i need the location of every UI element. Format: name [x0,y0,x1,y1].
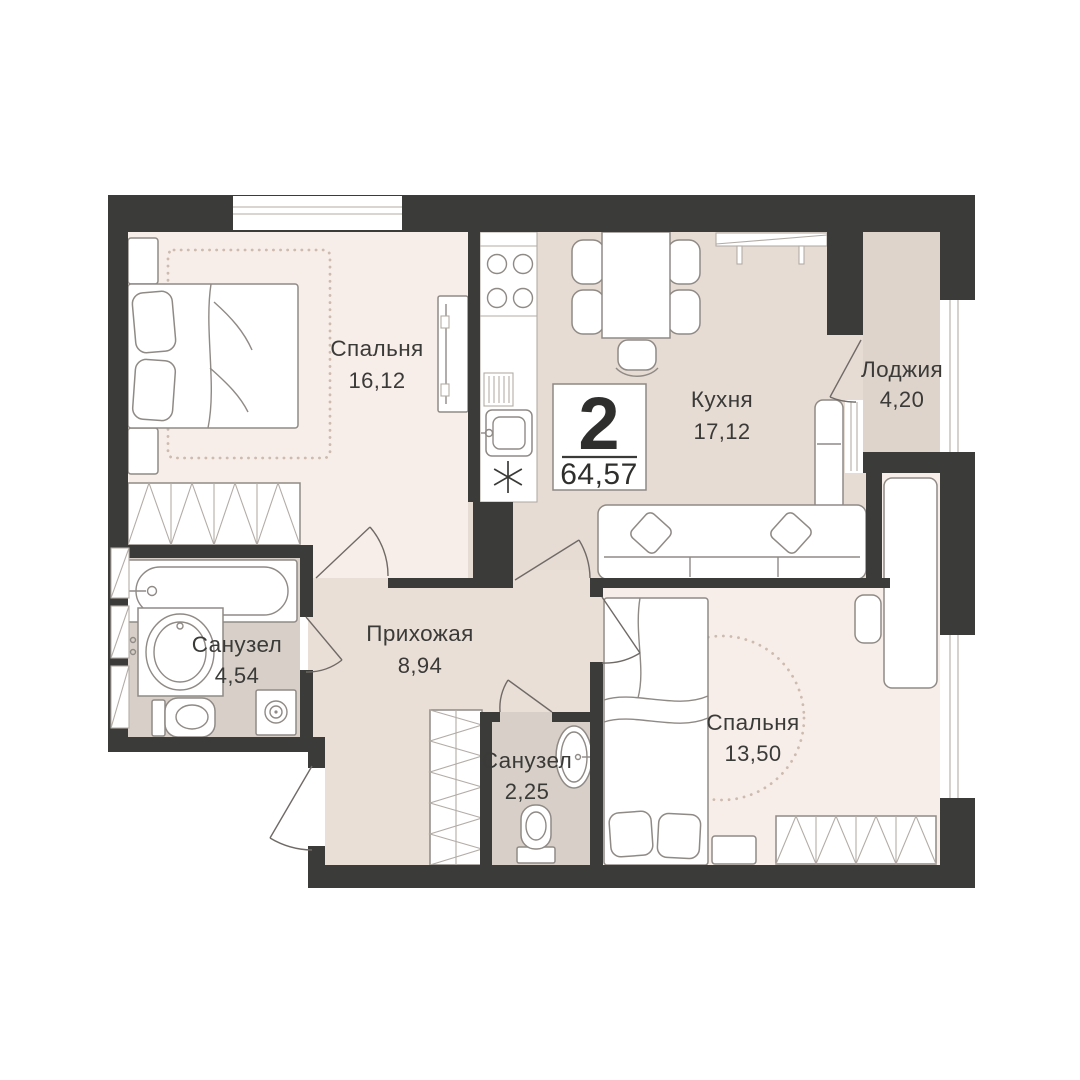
label-kitchen-name: Кухня [691,387,753,412]
wall-kitchen-loggia [827,232,863,335]
wall-kitchen-stub [473,502,513,588]
wall-right-middle [940,452,975,635]
label-kitchen-area: 17,12 [693,419,750,444]
floor-hallway-door-strip [503,570,603,588]
wall-right-top [940,232,975,300]
label-bathroom-2-area: 2,25 [505,779,549,804]
window-loggia-right [940,300,973,452]
chair-icon [572,290,604,334]
single-bed-icon [604,598,708,865]
badge-rooms-count: 2 [578,382,619,465]
dining-table-icon [602,232,670,338]
window-bedroom-2-right [940,635,973,798]
hallway-wardrobe-icon [430,710,482,865]
chair-icon [572,240,604,284]
label-loggia-name: Лоджия [861,357,943,382]
nightstand-icon [128,238,158,284]
wall-bottom [308,865,975,888]
wall-bath2-top-left [487,712,500,722]
wall-bath2-top-right [552,712,590,722]
entry-door-icon [270,766,312,850]
label-hallway-name: Прихожая [366,621,473,646]
window-bedroom-1 [233,196,402,230]
vent-shafts [111,548,129,728]
badge-total-area: 64,57 [560,458,638,491]
nightstand-icon [128,428,158,474]
wall-kitchen-hall [590,578,890,588]
label-bedroom-1-area: 16,12 [348,368,405,393]
wall-bedroom2-left-top [590,578,603,597]
entry-door-gap [308,768,325,846]
chair-icon [668,290,700,334]
wall-kitchen-bedroom2 [866,473,882,588]
tv-stand-icon [438,296,468,412]
chair-icon [668,240,700,284]
apartment-badge: 2 64,57 [553,382,646,491]
wall-bedroom1-hall [388,578,473,588]
kitchen-sink-icon [481,410,532,456]
wall-under-loggia [863,452,940,473]
wall-bath1-right-bottom [300,670,313,752]
wall-bedroom1-kitchen [468,232,480,502]
toilet-icon [152,698,215,737]
wall-right-bottom [940,798,975,888]
wall-bedroom2-left [590,662,603,868]
floor-plan-page: Спальня 16,12 Кухня 17,12 Лоджия 4,20 Са… [0,0,1080,1080]
label-loggia-area: 4,20 [880,387,924,412]
floor-plan-svg: Спальня 16,12 Кухня 17,12 Лоджия 4,20 Са… [0,0,1080,1080]
wall-bath-bottom [108,737,325,752]
label-bathroom-1-name: Санузел [192,632,282,657]
wall-bath1-right-top [300,545,313,617]
wall-bath1-top [108,545,300,558]
washing-machine-icon [256,690,296,735]
window-kitchen-loggia [845,400,863,473]
wardrobe-icon [776,816,936,864]
label-bathroom-1-area: 4,54 [215,663,259,688]
label-bathroom-2-name: Санузел [482,748,572,773]
nightstand-icon [712,836,756,864]
label-hallway-area: 8,94 [398,653,442,678]
chair-icon [855,595,881,643]
label-bedroom-2-name: Спальня [706,710,799,735]
chair-icon [618,340,656,370]
dish-rack-icon [484,373,513,406]
wall-bath2-left [480,712,492,868]
wardrobe-icon [128,483,300,545]
toilet-icon [517,805,555,863]
label-bedroom-2-area: 13,50 [724,741,781,766]
double-bed-icon [128,284,298,428]
label-bedroom-1-name: Спальня [330,336,423,361]
floor-loggia [863,214,940,452]
